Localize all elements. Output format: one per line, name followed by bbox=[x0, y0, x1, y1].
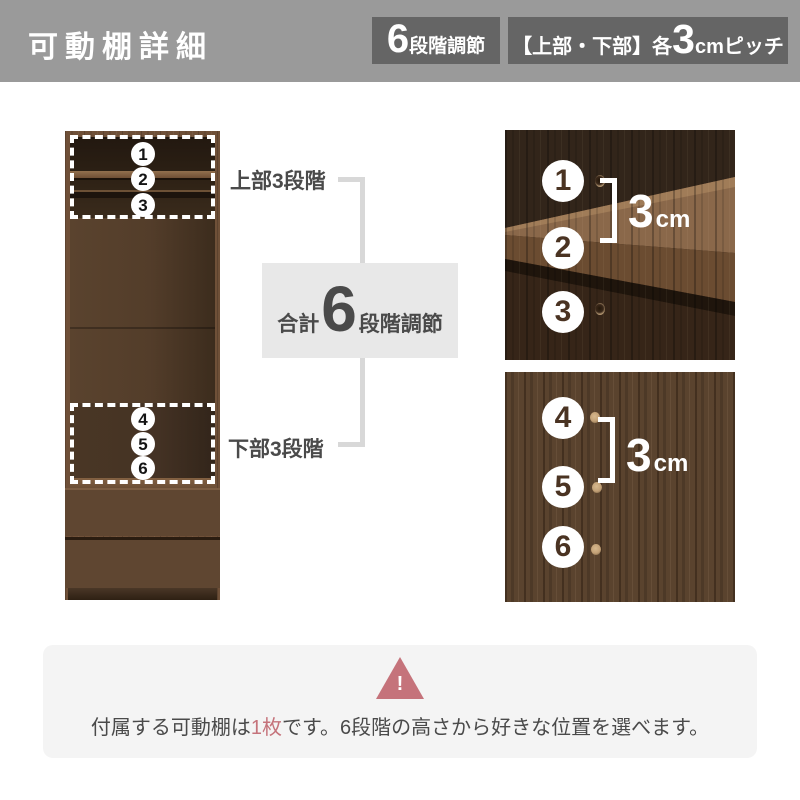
cabinet-drawer-bottom bbox=[65, 537, 220, 588]
note-text-end: です。6段階の高さから好きな位置を選べます。 bbox=[282, 717, 709, 739]
photo-position-2-badge: 2 bbox=[542, 227, 584, 269]
cabinet-drawer-top bbox=[65, 488, 220, 536]
badge-pitch: 【上部・下部】各3cmピッチ bbox=[508, 17, 788, 64]
warning-exclamation: ! bbox=[376, 673, 424, 696]
cabinet-plinth bbox=[68, 588, 217, 600]
pitch-unit: cm bbox=[654, 450, 689, 478]
header-bar: 可動棚詳細 6段階調節 【上部・下部】各3cmピッチ bbox=[0, 0, 800, 82]
measure-bracket bbox=[598, 417, 615, 483]
upper-zone-label: 上部3段階 bbox=[230, 165, 326, 195]
note-text-highlight: 1枚 bbox=[251, 717, 282, 739]
shelf-position-4-badge: 4 bbox=[131, 407, 155, 431]
total-number: 6 bbox=[321, 277, 357, 341]
wood-grain-overlay bbox=[505, 130, 735, 360]
shelf-position-5-badge: 5 bbox=[131, 432, 155, 456]
photo-position-4-badge: 4 bbox=[542, 397, 584, 439]
note-text-start: 付属する可動棚は bbox=[91, 717, 251, 739]
badge-six-levels-label: 段階調節 bbox=[409, 31, 485, 58]
photo-position-6-badge: 6 bbox=[542, 526, 584, 568]
connector-line bbox=[360, 177, 365, 263]
shelf-pin bbox=[592, 482, 602, 493]
connector-line bbox=[360, 358, 365, 447]
note-panel: ! 付属する可動棚は1枚です。6段階の高さから好きな位置を選べます。 bbox=[43, 645, 757, 758]
cabinet-middle-interior bbox=[70, 218, 215, 403]
shelf-position-1-badge: 1 bbox=[131, 142, 155, 166]
photo-position-5-badge: 5 bbox=[542, 466, 584, 508]
cabinet-back-seam bbox=[70, 327, 215, 329]
shelf-position-6-badge: 6 bbox=[131, 456, 155, 480]
closeup-photo-lower: 4 5 6 3 cm bbox=[505, 372, 735, 602]
pitch-unit: cm bbox=[656, 206, 691, 234]
shelf-position-2-badge: 2 bbox=[131, 167, 155, 191]
peg-hole bbox=[595, 303, 605, 315]
photo-position-1-badge: 1 bbox=[542, 160, 584, 202]
closeup-photo-upper: 1 2 3 3 cm bbox=[505, 130, 735, 360]
badge-pitch-suffix: cmピッチ bbox=[695, 30, 784, 59]
photo-position-3-badge: 3 bbox=[542, 291, 584, 333]
badge-six-levels: 6段階調節 bbox=[372, 17, 500, 64]
total-prefix: 合計 bbox=[277, 308, 319, 338]
measure-bracket bbox=[600, 178, 617, 243]
shelf-position-3-badge: 3 bbox=[131, 193, 155, 217]
total-adjustment-panel: 合計 6 段階調節 bbox=[262, 263, 458, 358]
pitch-value: 3 bbox=[628, 188, 654, 234]
wood-grain-overlay bbox=[505, 372, 735, 602]
pitch-measurement: 3 cm bbox=[628, 188, 690, 234]
total-suffix: 段階調節 bbox=[359, 308, 443, 338]
warning-triangle-icon: ! bbox=[376, 657, 424, 700]
product-detail-infographic: 可動棚詳細 6段階調節 【上部・下部】各3cmピッチ 1 2 3 4 5 6 上… bbox=[0, 0, 800, 800]
badge-six-levels-number: 6 bbox=[387, 17, 409, 62]
badge-pitch-number: 3 bbox=[672, 17, 695, 62]
page-title: 可動棚詳細 bbox=[28, 22, 213, 66]
lower-zone-label: 下部3段階 bbox=[228, 433, 324, 463]
connector-line bbox=[338, 442, 365, 447]
pitch-value: 3 bbox=[626, 432, 652, 478]
note-text: 付属する可動棚は1枚です。6段階の高さから好きな位置を選べます。 bbox=[43, 711, 757, 740]
pitch-measurement: 3 cm bbox=[626, 432, 688, 478]
shelf-pin bbox=[591, 544, 601, 555]
badge-pitch-prefix: 【上部・下部】各 bbox=[512, 30, 672, 59]
